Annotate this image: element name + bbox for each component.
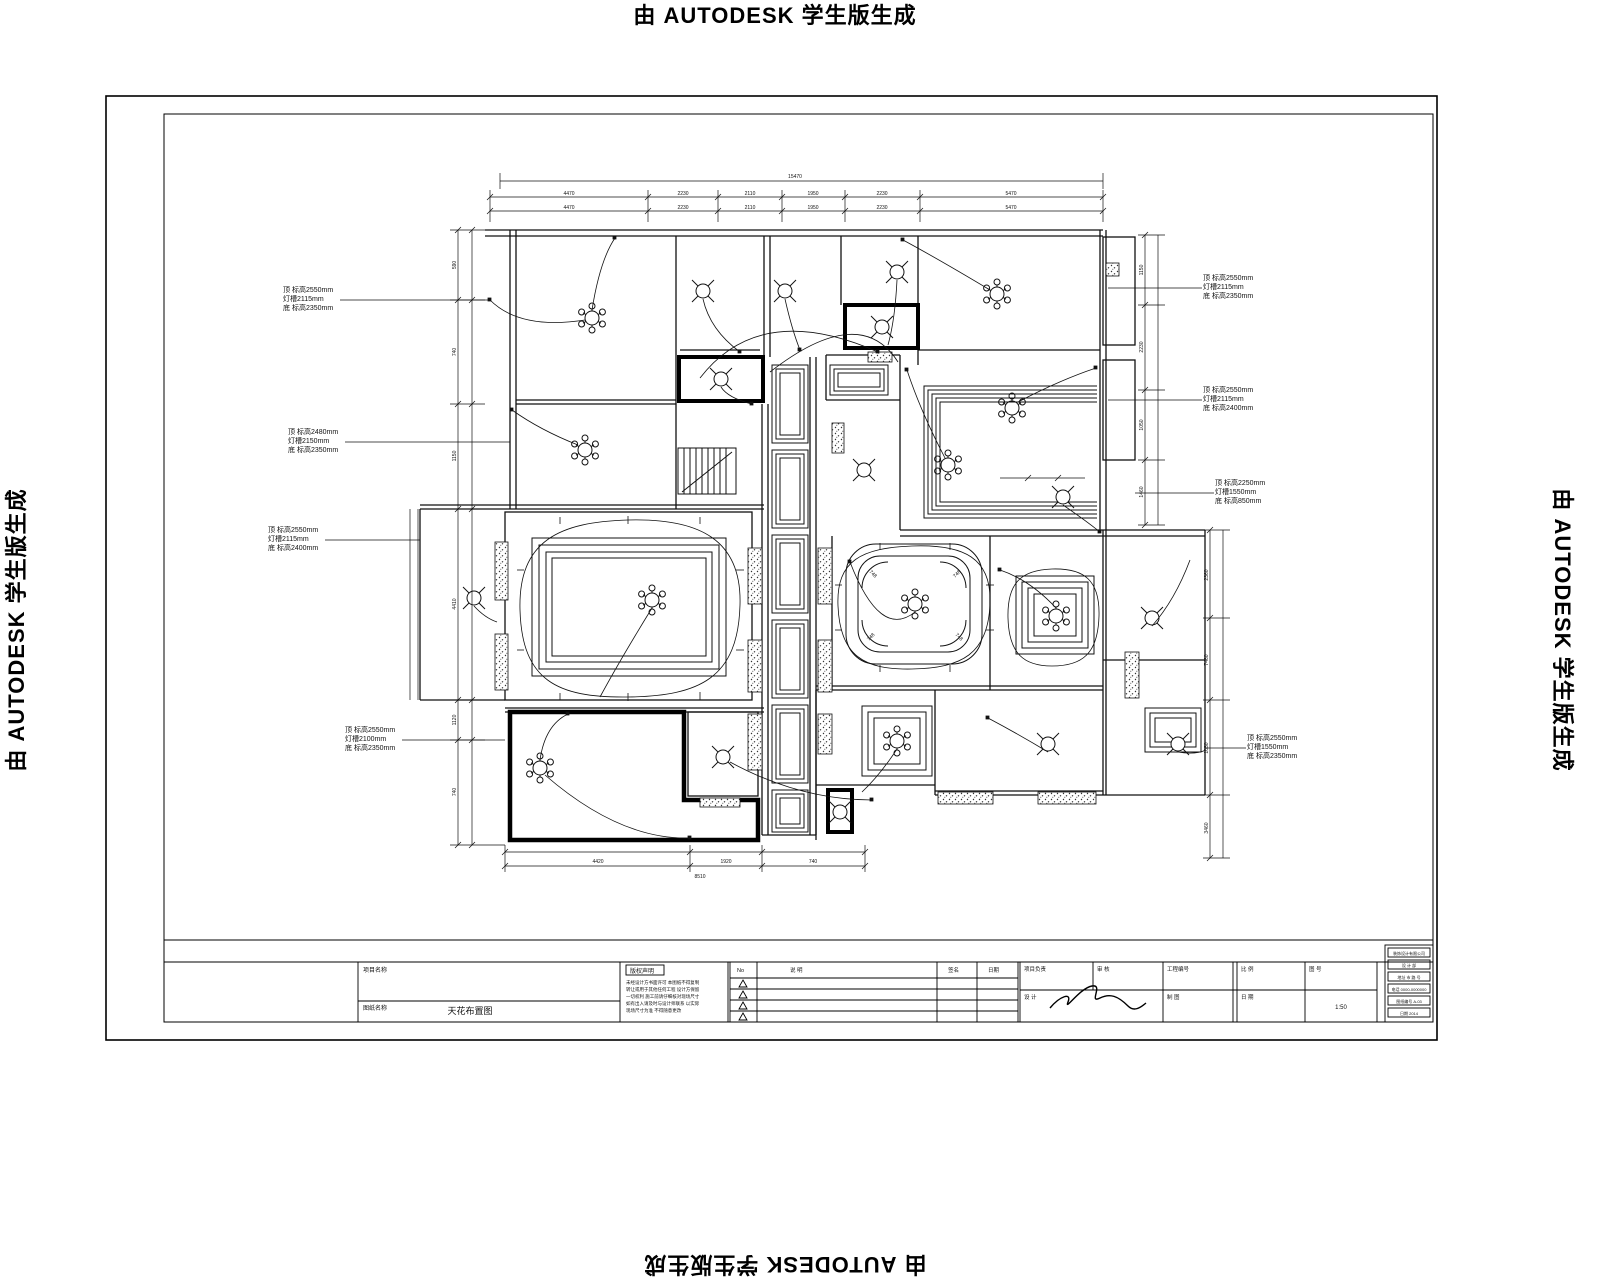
- svg-text:地址 市 路 号: 地址 市 路 号: [1397, 974, 1420, 980]
- svg-text:比 例: 比 例: [1241, 965, 1254, 973]
- svg-text:2230: 2230: [876, 205, 887, 211]
- svg-text:转让或用于其他任何工程 设计方保留: 转让或用于其他任何工程 设计方保留: [626, 986, 700, 993]
- svg-text:740: 740: [809, 859, 818, 865]
- ceiling-annotation: 顶 标高2480mm 灯槽2150mm 底 标高2350mm: [288, 428, 338, 455]
- svg-text:2230: 2230: [677, 191, 688, 197]
- svg-text:1950: 1950: [807, 191, 818, 197]
- scale-value: 1:50: [1335, 1005, 1347, 1011]
- svg-text:1950: 1950: [807, 205, 818, 211]
- svg-text:4470: 4470: [563, 205, 574, 211]
- svg-text:7460: 7460: [1204, 654, 1210, 665]
- svg-text:装饰设计有限公司: 装饰设计有限公司: [1393, 950, 1425, 956]
- ceiling-plan-drawing: 15470 4470 2230 2110 1950 2230 5470 4470…: [0, 0, 1600, 1280]
- svg-text:一切权利 施工前请仔细核对现场尺寸: 一切权利 施工前请仔细核对现场尺寸: [626, 993, 700, 1000]
- svg-text:1460: 1460: [1139, 486, 1145, 497]
- svg-text:1120: 1120: [452, 714, 458, 725]
- svg-text:设 计 部: 设 计 部: [1402, 962, 1416, 968]
- svg-text:日期: 日期: [988, 967, 1000, 974]
- svg-text:8510: 8510: [694, 874, 705, 880]
- svg-text:2110: 2110: [745, 205, 756, 211]
- svg-text:日 期: 日 期: [1241, 994, 1254, 1001]
- chandelier-icon: [572, 435, 599, 465]
- annotation-leaders: [325, 288, 1246, 748]
- plan-thick-beams: [510, 305, 918, 840]
- downlight-icon: [712, 746, 734, 768]
- svg-text:图 号: 图 号: [1309, 965, 1322, 973]
- svg-text:日期 2014: 日期 2014: [1400, 1010, 1419, 1016]
- ceiling-annotation: 顶 标高2550mm 灯槽2115mm 底 标高2350mm: [283, 286, 333, 313]
- ceiling-annotation: 顶 标高2550mm 灯槽2100mm 底 标高2350mm: [345, 726, 395, 753]
- svg-text:1050: 1050: [1139, 419, 1145, 430]
- title-block-texts: 项目名称 图纸名称 天花布置图 版权声明 未经设计方书面许可 本图纸不得复制 转…: [363, 950, 1427, 1016]
- svg-text:工程编号: 工程编号: [1167, 965, 1190, 973]
- svg-text:740: 740: [452, 348, 458, 357]
- chandelier-icon: [902, 589, 929, 619]
- svg-text:5470: 5470: [1005, 205, 1016, 211]
- ceiling-annotation: 顶 标高2550mm 灯槽2115mm 底 标高2400mm: [268, 526, 318, 553]
- svg-text:1150: 1150: [452, 450, 458, 461]
- svg-text:1150: 1150: [1139, 264, 1145, 275]
- downlight-icon: [871, 316, 893, 338]
- svg-text:1920: 1920: [720, 859, 731, 865]
- svg-text:2230: 2230: [876, 191, 887, 197]
- svg-text:2110: 2110: [745, 191, 756, 197]
- svg-text:现场尺寸为准 不得随意更改: 现场尺寸为准 不得随意更改: [626, 1007, 682, 1014]
- svg-text:设 计: 设 计: [1024, 993, 1037, 1001]
- chandelier-icon: [884, 726, 911, 756]
- downlight-icon: [463, 587, 485, 609]
- svg-text:748: 748: [868, 569, 878, 579]
- signature: [1050, 986, 1146, 1009]
- svg-text:740: 740: [452, 788, 458, 797]
- svg-text:电话 0000-0000000: 电话 0000-0000000: [1392, 986, 1428, 992]
- svg-text:2360: 2360: [1204, 569, 1210, 580]
- title-block: [164, 940, 1433, 1022]
- svg-text:748: 748: [952, 569, 962, 579]
- svg-text:3460: 3460: [1204, 822, 1210, 833]
- chandelier-icon: [639, 585, 666, 615]
- svg-text:2230: 2230: [677, 205, 688, 211]
- downlight-icon: [774, 280, 796, 302]
- cad-sheet: { "watermark": { "text": "由 AUTODESK 学生版…: [0, 0, 1600, 1280]
- svg-text:5470: 5470: [1005, 191, 1016, 197]
- chandelier-icon: [935, 450, 962, 480]
- copyright-label: 版权声明: [630, 967, 654, 975]
- ceiling-annotation: 顶 标高2550mm 灯槽1550mm 底 标高2350mm: [1247, 734, 1297, 761]
- chandelier-icon: [1043, 601, 1070, 631]
- svg-text:4470: 4470: [563, 191, 574, 197]
- downlight-icon: [710, 368, 732, 390]
- svg-text:签名: 签名: [948, 966, 959, 974]
- svg-text:图纸编号 A-03: 图纸编号 A-03: [1396, 998, 1422, 1004]
- dimension-texts: 15470 4470 2230 2110 1950 2230 5470 4470…: [452, 174, 1210, 880]
- svg-text:748: 748: [866, 632, 876, 642]
- downlight-icon: [886, 261, 908, 283]
- svg-text:No: No: [737, 968, 744, 974]
- svg-text:590: 590: [452, 261, 458, 270]
- downlight-icon: [853, 459, 875, 481]
- project-name-label: 项目名称: [363, 966, 387, 974]
- svg-text:未经设计方书面许可 本图纸不得复制: 未经设计方书面许可 本图纸不得复制: [626, 979, 700, 986]
- svg-text:4410: 4410: [452, 598, 458, 609]
- ceiling-annotation: 顶 标高2550mm 灯槽2115mm 底 标高2350mm: [1203, 274, 1253, 301]
- svg-text:如有出入请及时与设计师联系 以实际: 如有出入请及时与设计师联系 以实际: [626, 1000, 700, 1007]
- stairs: [678, 448, 736, 494]
- svg-text:2230: 2230: [1139, 341, 1145, 352]
- ceiling-annotation: 顶 标高2250mm 灯槽1550mm 底 标高850mm: [1215, 479, 1265, 506]
- plan-hatch: [495, 263, 1139, 807]
- drawing-name: 天花布置图: [447, 1005, 492, 1016]
- svg-text:4420: 4420: [592, 859, 603, 865]
- chandelier-icon: [984, 279, 1011, 309]
- svg-text:制 图: 制 图: [1167, 993, 1180, 1001]
- ceiling-annotation: 顶 标高2550mm 灯槽2115mm 底 标高2400mm: [1203, 386, 1253, 413]
- svg-text:说 明: 说 明: [790, 966, 803, 974]
- downlight-icon: [1052, 486, 1074, 508]
- svg-text:审 核: 审 核: [1097, 965, 1110, 973]
- downlight-icon: [829, 801, 851, 823]
- chandelier-icon: [579, 303, 606, 333]
- downlight-icon: [692, 280, 714, 302]
- drawing-name-label: 图纸名称: [363, 1004, 387, 1012]
- dim-label: 15470: [788, 174, 802, 180]
- svg-text:项目负责: 项目负责: [1024, 965, 1047, 973]
